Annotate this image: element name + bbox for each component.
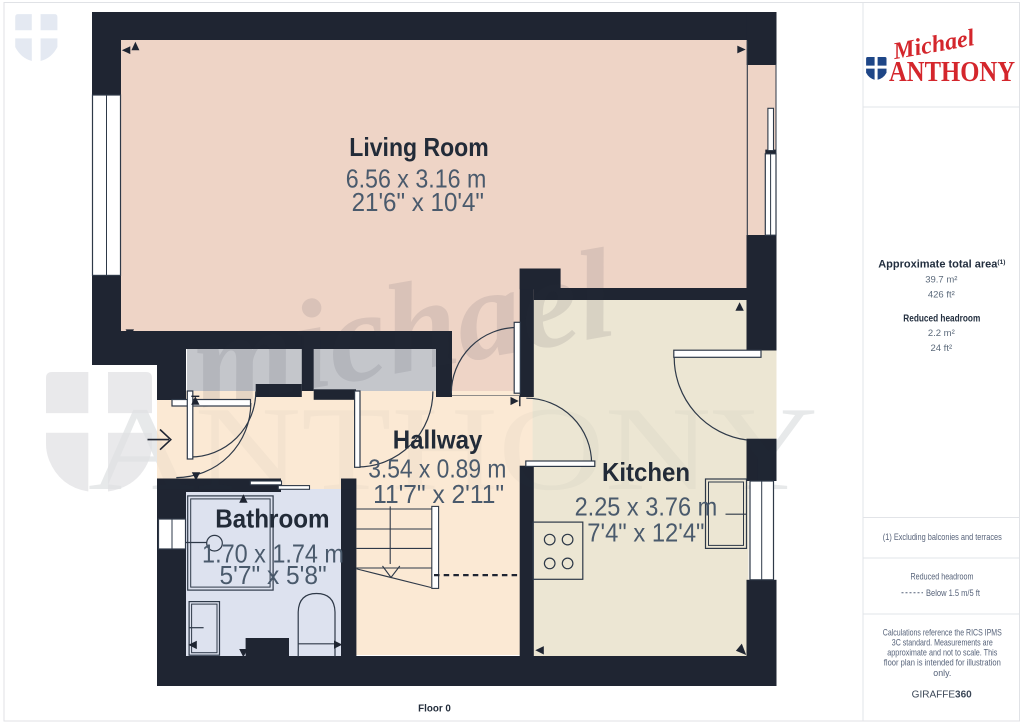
svg-text:Kitchen: Kitchen bbox=[602, 457, 690, 487]
svg-text:floor plan is intended for ill: floor plan is intended for illustration bbox=[884, 658, 1001, 668]
svg-text:Bathroom: Bathroom bbox=[215, 504, 329, 534]
svg-text:426 ft²: 426 ft² bbox=[928, 290, 955, 301]
svg-text:Reduced headroom: Reduced headroom bbox=[911, 571, 974, 581]
svg-text:24 ft²: 24 ft² bbox=[930, 343, 952, 354]
svg-text:Calculations reference the RIC: Calculations reference the RICS IPMS bbox=[883, 627, 1002, 637]
svg-text:5'7" x 5'8": 5'7" x 5'8" bbox=[220, 560, 327, 590]
svg-text:Hallway: Hallway bbox=[393, 424, 483, 454]
svg-text:Reduced headroom: Reduced headroom bbox=[903, 313, 980, 325]
svg-text:Floor 0: Floor 0 bbox=[418, 704, 451, 715]
svg-text:only.: only. bbox=[933, 668, 951, 678]
svg-text:GIRAFFE360: GIRAFFE360 bbox=[912, 690, 972, 701]
svg-text:ANTHONY: ANTHONY bbox=[889, 57, 1015, 88]
svg-text:7'4" x 12'4": 7'4" x 12'4" bbox=[587, 517, 704, 547]
svg-text:39.7 m²: 39.7 m² bbox=[925, 274, 957, 285]
svg-text:21'6" x 10'4": 21'6" x 10'4" bbox=[352, 187, 484, 217]
svg-text:Living Room: Living Room bbox=[349, 132, 488, 162]
svg-text:2.2 m²: 2.2 m² bbox=[928, 328, 955, 339]
svg-text:Approximate total area(1): Approximate total area(1) bbox=[878, 258, 1005, 270]
svg-text:approximate and not to scale.: approximate and not to scale. This bbox=[887, 648, 997, 658]
svg-text:11'7" x 2'11": 11'7" x 2'11" bbox=[373, 479, 504, 509]
svg-text:3C standard. Measurements are: 3C standard. Measurements are bbox=[892, 638, 993, 648]
svg-text:Below 1.5 m/5 ft: Below 1.5 m/5 ft bbox=[926, 588, 980, 598]
svg-text:(1) Excluding balconies and te: (1) Excluding balconies and terraces bbox=[883, 532, 1002, 542]
